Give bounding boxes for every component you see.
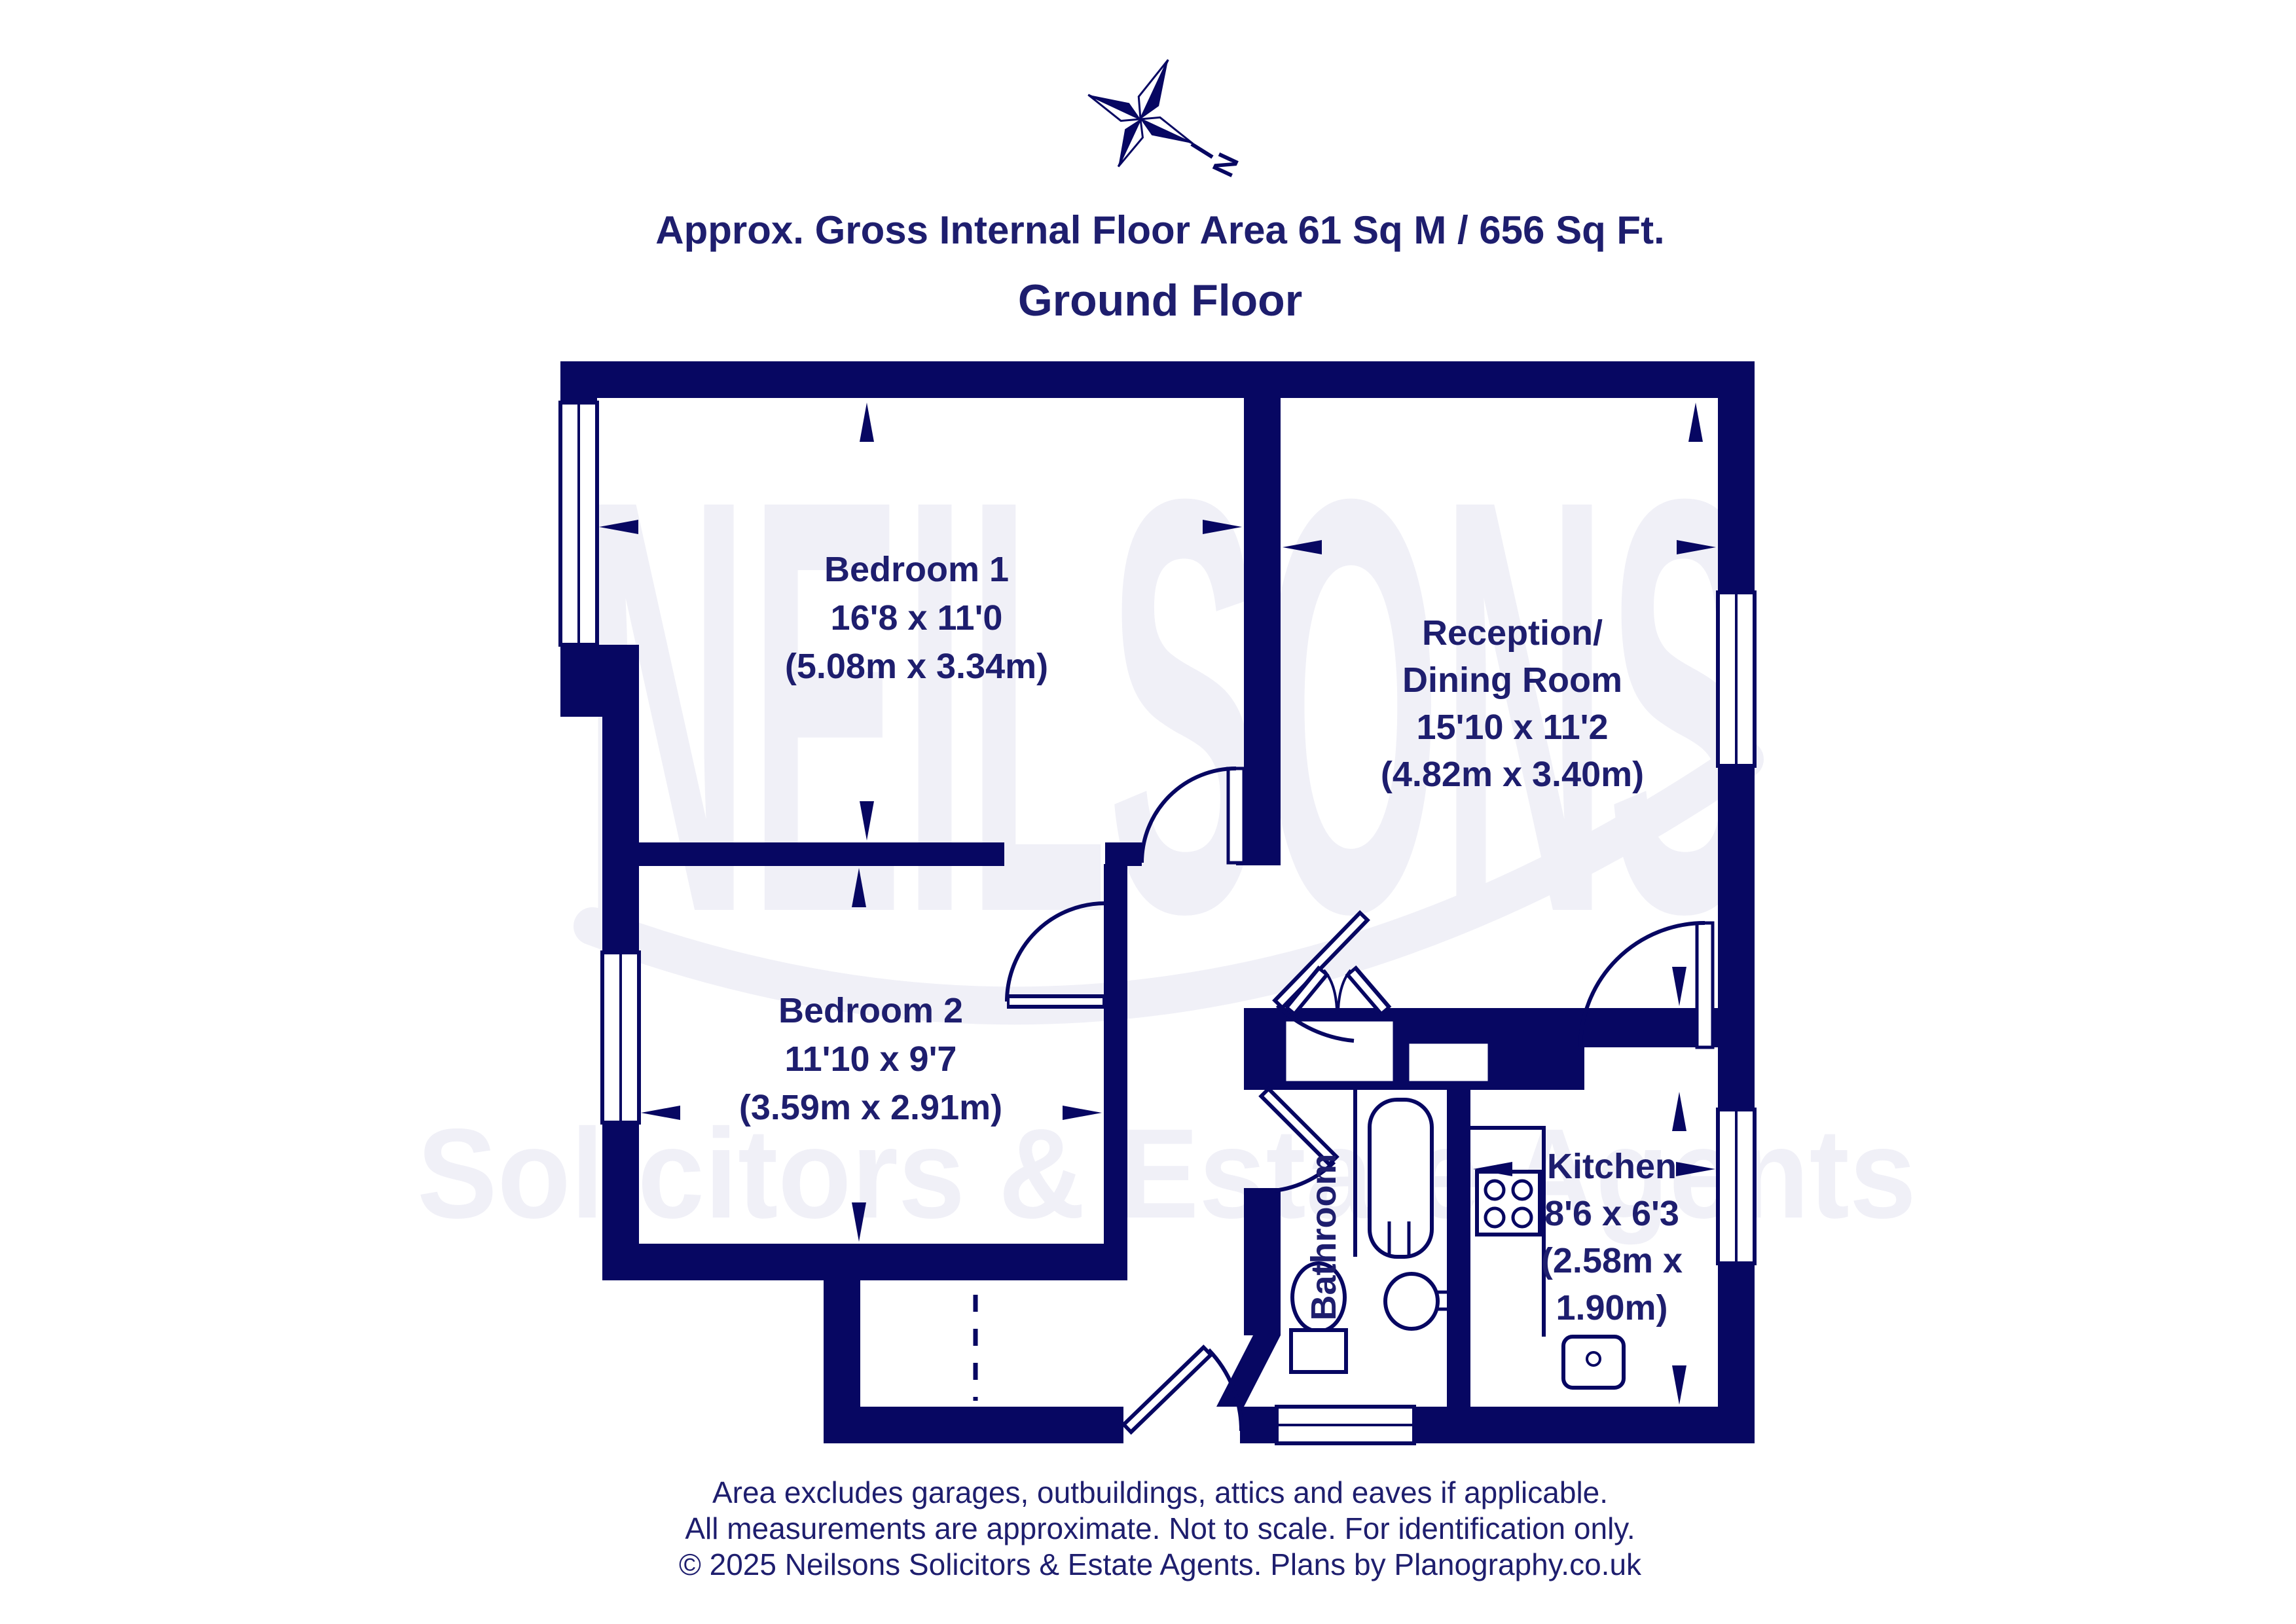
wall-segment [1244, 1188, 1281, 1335]
room-label-bedroom2: Bedroom 2 11'10 x 9'7 (3.59m x 2.91m) [739, 991, 1002, 1127]
wall-segment [639, 842, 1004, 866]
room-name: Bedroom 2 [778, 991, 963, 1030]
door-leaf [1697, 923, 1713, 1047]
wall-segment [1244, 1008, 1281, 1090]
floor-name: Ground Floor [1018, 276, 1302, 325]
kitchen-doorway-opening [1584, 1047, 1718, 1090]
room-name: Reception/ [1422, 613, 1603, 653]
cupboard [1285, 1020, 1394, 1083]
door-leaf [1129, 1352, 1206, 1427]
wall-segment [824, 1407, 1123, 1443]
compass-icon: N [1066, 35, 1245, 191]
hob-ring [1485, 1208, 1504, 1227]
hob-ring [1485, 1181, 1504, 1199]
door-entrance [1126, 1350, 1241, 1431]
hob [1477, 1172, 1540, 1235]
wall-segment [1447, 1090, 1470, 1407]
sink-outline [1563, 1337, 1624, 1388]
wall-segment [560, 361, 597, 407]
compass-north-label: N [1205, 148, 1245, 182]
wall-segment [1105, 842, 1142, 866]
window-bedroom2 [602, 952, 639, 1123]
room-size-metric: 1.90m) [1556, 1288, 1667, 1327]
footer-line-3: © 2025 Neilsons Solicitors & Estate Agen… [679, 1547, 1642, 1581]
footer-line-2: All measurements are approximate. Not to… [685, 1511, 1635, 1545]
wall-segment [602, 717, 639, 952]
wall-segment [560, 361, 1755, 398]
room-label-bathroom: Bathroom [1304, 1154, 1343, 1321]
alcove-shelf [1408, 1042, 1489, 1083]
room-name: Bedroom 1 [824, 550, 1009, 589]
window-kitchen [1718, 1110, 1755, 1263]
window-bedroom1 [560, 403, 597, 645]
bathtub-outline [1370, 1100, 1432, 1257]
room-size-imperial: 11'10 x 9'7 [785, 1039, 957, 1079]
room-size-imperial: 15'10 x 11'2 [1417, 708, 1609, 747]
room-size-metric: (2.58m x [1541, 1241, 1683, 1280]
floorplan-canvas: NEILSONS Solicitors & Estate Agents N Ap… [0, 0, 2296, 1624]
door-leaf [1228, 768, 1244, 863]
wall-segment [1718, 766, 1755, 1110]
wall-segment [1240, 1407, 1277, 1443]
wall-segment [1244, 361, 1281, 865]
hob-outline [1477, 1172, 1540, 1235]
window-reception [1718, 592, 1755, 766]
room-size-imperial: 16'8 x 11'0 [831, 598, 1003, 638]
wall-segment [1718, 361, 1755, 592]
room-size-metric: (4.82m x 3.40m) [1381, 755, 1644, 794]
room-size-metric: (5.08m x 3.34m) [785, 647, 1048, 686]
wall-segment [1104, 864, 1127, 1280]
hob-ring [1513, 1208, 1531, 1227]
room-size-imperial: 8'6 x 6'3 [1544, 1194, 1679, 1233]
basin-bowl [1385, 1274, 1438, 1329]
window-bathroom [1277, 1407, 1414, 1443]
wall-segment [602, 1244, 1127, 1280]
hob-ring [1513, 1181, 1531, 1199]
room-name: Kitchen [1547, 1147, 1677, 1186]
wall-segment [560, 645, 639, 717]
watermark: NEILSONS Solicitors & Estate Agents [417, 376, 1916, 1245]
bathtub [1370, 1100, 1432, 1257]
watermark-brand: NEILSONS [583, 376, 1761, 1035]
floor-area-title: Approx. Gross Internal Floor Area 61 Sq … [655, 208, 1664, 252]
room-size-metric: (3.59m x 2.91m) [739, 1088, 1002, 1127]
wall-segment [1414, 1407, 1755, 1443]
wash-basin [1385, 1274, 1448, 1329]
measure-arrow-down [1672, 1365, 1686, 1405]
watermark-tagline: Solicitors & Estate Agents [417, 1102, 1916, 1245]
footer-line-1: Area excludes garages, outbuildings, att… [712, 1475, 1608, 1509]
kitchen-sink [1563, 1337, 1624, 1388]
compass-needle-line [1192, 144, 1212, 157]
room-name: Dining Room [1402, 660, 1622, 700]
toilet-cistern [1291, 1330, 1346, 1372]
wall-segment [824, 1280, 860, 1443]
